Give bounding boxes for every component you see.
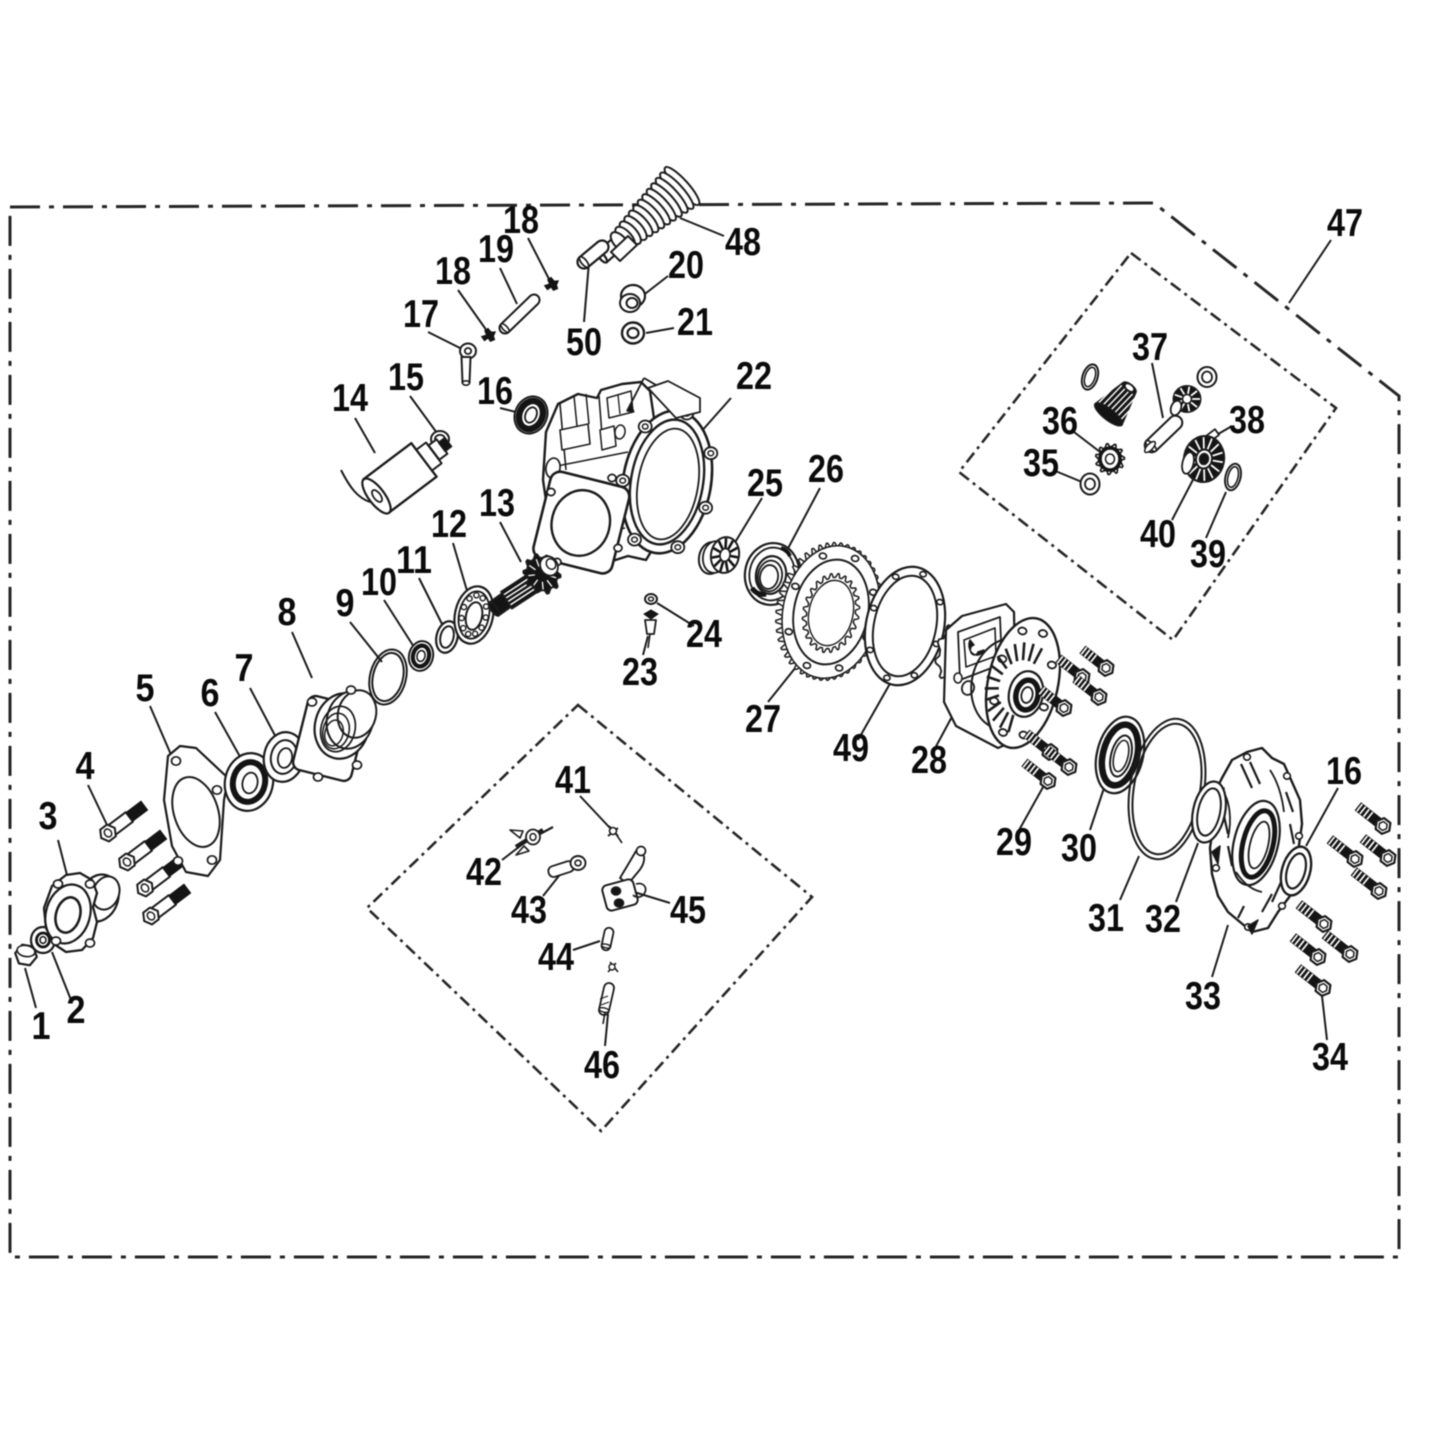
svg-text:46: 46 xyxy=(584,1044,620,1087)
svg-text:18: 18 xyxy=(435,250,471,293)
svg-text:6: 6 xyxy=(201,672,220,715)
svg-text:33: 33 xyxy=(1185,975,1221,1018)
svg-text:5: 5 xyxy=(136,667,155,710)
svg-text:18: 18 xyxy=(503,199,539,242)
svg-text:26: 26 xyxy=(808,448,844,491)
svg-text:47: 47 xyxy=(1327,202,1363,245)
svg-text:4: 4 xyxy=(76,745,95,788)
svg-text:13: 13 xyxy=(479,482,515,525)
svg-text:8: 8 xyxy=(278,591,297,634)
svg-text:28: 28 xyxy=(911,739,947,782)
svg-text:37: 37 xyxy=(1132,326,1168,369)
svg-text:45: 45 xyxy=(670,889,706,932)
svg-text:20: 20 xyxy=(668,244,704,287)
svg-text:7: 7 xyxy=(235,647,254,690)
svg-text:44: 44 xyxy=(538,936,574,979)
svg-text:24: 24 xyxy=(686,613,722,656)
svg-text:29: 29 xyxy=(996,821,1032,864)
svg-text:43: 43 xyxy=(511,889,547,932)
svg-text:39: 39 xyxy=(1190,533,1226,576)
svg-text:11: 11 xyxy=(396,539,432,582)
svg-text:17: 17 xyxy=(403,293,439,336)
svg-text:41: 41 xyxy=(555,759,591,802)
svg-text:48: 48 xyxy=(725,221,761,264)
svg-text:15: 15 xyxy=(388,356,424,399)
svg-text:3: 3 xyxy=(39,795,58,838)
svg-text:21: 21 xyxy=(677,301,713,344)
svg-text:23: 23 xyxy=(622,651,658,694)
svg-text:35: 35 xyxy=(1023,442,1059,485)
svg-text:12: 12 xyxy=(431,503,467,546)
svg-text:16: 16 xyxy=(1326,750,1362,793)
svg-text:14: 14 xyxy=(332,377,368,420)
svg-text:9: 9 xyxy=(336,582,355,625)
svg-text:50: 50 xyxy=(566,321,602,364)
svg-text:16: 16 xyxy=(477,370,513,413)
svg-text:25: 25 xyxy=(747,462,783,505)
svg-text:27: 27 xyxy=(745,698,781,741)
svg-text:10: 10 xyxy=(361,561,397,604)
svg-text:38: 38 xyxy=(1229,399,1265,442)
svg-text:31: 31 xyxy=(1088,897,1124,940)
svg-text:22: 22 xyxy=(736,355,772,398)
svg-text:40: 40 xyxy=(1140,513,1176,556)
svg-text:36: 36 xyxy=(1042,400,1078,443)
svg-text:2: 2 xyxy=(67,989,86,1032)
svg-text:1: 1 xyxy=(32,1005,51,1048)
svg-text:34: 34 xyxy=(1312,1036,1348,1079)
svg-text:32: 32 xyxy=(1145,898,1181,941)
svg-text:30: 30 xyxy=(1061,827,1097,870)
svg-text:42: 42 xyxy=(466,851,502,894)
svg-text:49: 49 xyxy=(833,727,869,770)
